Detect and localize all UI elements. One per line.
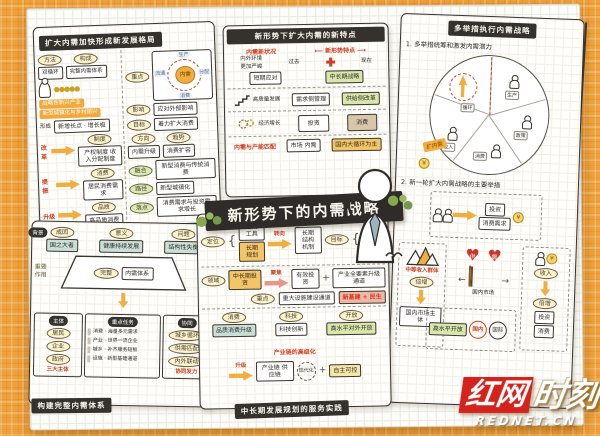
oval-label: 重点 — [250, 293, 274, 304]
plus-glyph: + — [322, 274, 330, 283]
flow-box: 内需升级 — [128, 145, 160, 159]
oval-label: 定位 — [201, 236, 225, 247]
oval-label: 成因 — [50, 227, 74, 238]
cycle-node: 流通 — [153, 70, 167, 77]
person-icon — [448, 127, 456, 139]
flow-box: 有效投资 — [291, 269, 319, 289]
flow-box: 国内大循环为主 — [331, 138, 381, 152]
pie-divider — [489, 99, 545, 116]
cycle-node: 生产 — [176, 51, 190, 58]
flow-box: 投资 — [534, 311, 554, 325]
form-label: 形成 — [40, 123, 51, 130]
pie-label: 循环 — [460, 103, 474, 112]
column-tasks: 重点任务 消费 · 海量多元需求 产业 · 世界一流企业 城乡 · 补齐服务短板… — [84, 313, 160, 378]
oval-label: 影响 — [126, 104, 150, 116]
panel1-title: 扩大内需加快形成新发展格局 — [39, 32, 162, 51]
flow-box: 供给侧改革 — [342, 91, 380, 105]
watermark-domain: REDNET.CN — [456, 414, 596, 428]
flow-box: 应对外部影响 — [153, 102, 197, 117]
watermark-brand-red: 红网 — [459, 377, 534, 413]
flow-box: 自主可控 — [329, 363, 361, 377]
left-note: 重要作用 — [35, 263, 47, 279]
person-icon — [433, 208, 441, 220]
flow-box: 市场 内需 — [287, 139, 321, 153]
flow-box: 需求侧管理 — [292, 92, 330, 106]
flow-box: 内需体系 — [121, 266, 153, 280]
flow-box: 产业链 供应链 — [256, 361, 294, 382]
flow-box: 高水平对外开放 — [327, 322, 377, 336]
flow-box: 消费需求 — [478, 216, 510, 230]
oval-label: 方法 — [38, 54, 62, 66]
flow-box: 高水平开放 — [429, 322, 467, 336]
flow-arrow-icon — [453, 209, 477, 221]
oval-label: 企业 — [46, 341, 70, 352]
watermark-brand-white: 时刻 — [531, 377, 600, 413]
red-caption: 产业链的高级化 — [274, 349, 316, 357]
person-icon — [491, 144, 499, 156]
flow-box: 中长期投资 — [228, 270, 261, 291]
mountain-icon — [405, 245, 440, 266]
oval-label: 消费 — [222, 312, 246, 323]
oval-label: 趋势 — [166, 132, 190, 144]
flow-box: 新基建 + 民生 — [338, 290, 385, 304]
oval-label: 重点 — [125, 71, 149, 83]
oval-label: 开放 — [339, 310, 363, 321]
down-arrow-icon — [415, 289, 427, 304]
arrow-tag: 聚焦 — [271, 270, 282, 277]
cycle-node: 消费 — [178, 92, 192, 99]
cycle-node: 分配 — [197, 68, 211, 75]
international-circulation-ring: 国际 — [489, 321, 508, 340]
market-label: 国内市场 — [472, 290, 494, 297]
highlight-text: 新型城镇化与乡村振兴 — [39, 107, 100, 118]
numbered-item-1: 1. 多举措统筹和激发内需潜力 — [406, 38, 578, 54]
column-header: 主体 — [49, 316, 68, 326]
down-arrow-icon — [118, 293, 129, 308]
flow-arrow-icon — [229, 370, 253, 381]
task-item: 消费 · 海量多元需求 — [88, 328, 157, 336]
oval-label: 落点 — [130, 202, 154, 214]
pie-label: 生产 — [505, 91, 519, 100]
oval-label: 品质 — [92, 201, 116, 213]
oval-label: 方向 — [131, 133, 155, 145]
flow-arrow-icon — [268, 238, 292, 249]
panel2-title: 新形势下扩大内需的新特点 — [227, 27, 385, 45]
demand-top-box: 投资 消费需求 ¥ — [429, 191, 543, 241]
oval-label: 政府 — [46, 354, 70, 365]
column-subjects: 主体 居民 企业 政府 三大主体 — [33, 312, 83, 376]
flow-box: 消费 — [347, 113, 377, 131]
now-label: 现在 — [361, 58, 372, 65]
oval-label: 构成 — [73, 53, 97, 65]
domestic-circulation-ring: 国内 — [469, 320, 488, 339]
oval-label: 消费 — [90, 167, 114, 179]
person-icon — [535, 252, 543, 264]
steps-icon — [234, 94, 250, 106]
oval-label: 路径 — [129, 183, 153, 195]
oval-label: 制度 — [88, 133, 112, 145]
chain-icon: ●●●●● — [54, 84, 80, 93]
mascot-figure — [342, 164, 404, 266]
oval-label: 居民 — [46, 328, 70, 339]
down-arrow-icon — [540, 281, 552, 296]
flow-box: 消费 — [534, 325, 554, 339]
task-item: 设施 · 新型基建通道 — [87, 355, 156, 363]
brace-glyph: { — [228, 235, 237, 248]
oval-label: 完整 — [94, 267, 118, 278]
supply-demand-hearts: ♥供 ♥需 — [454, 248, 514, 265]
flow-box: 着力扩大消费 — [154, 117, 198, 132]
plus-icon — [326, 57, 335, 66]
red-note: 中等收入群体 — [405, 267, 438, 275]
flow-box: 新型消费与传统消费 — [155, 158, 216, 180]
oval-label: 收入 — [534, 268, 558, 280]
poster-canvas: 扩大内需加快形成新发展格局 方法双循环 构成完整内需体系 ●●●●● 战略性新兴… — [0, 0, 600, 436]
panel4-title: 构建完整内需体系 — [31, 398, 111, 414]
person-icon — [522, 115, 530, 127]
person-icon — [509, 75, 517, 87]
pie-divider-red — [489, 57, 492, 115]
dual-circulation-box: 高水平开放 国内 国际 — [425, 307, 516, 352]
income-double-box: ¥ 收入 倍增 投资 消费 — [519, 246, 571, 352]
arrow-tag: 升级 — [235, 363, 246, 370]
flow-box: 产业全要素升级通道 — [333, 267, 386, 288]
watermark: 红网 时刻 REDNET.CN — [456, 377, 600, 428]
heart-icon: ♥供 — [465, 248, 482, 264]
flow-box: 长期 结构 机制 — [294, 226, 322, 253]
oval-label: 问题 — [172, 229, 196, 240]
mascot-drawing — [342, 164, 404, 266]
market-row: ← 国内市场 → — [449, 266, 518, 298]
tag-oval: 倍增 — [533, 298, 557, 310]
right-arrow-icon: → — [501, 278, 509, 287]
system-trapezoid: 完整 内需体系 — [59, 254, 188, 292]
past-label: 过去 — [288, 59, 299, 66]
flow-arrow-icon — [58, 209, 82, 221]
oval-label: 融合 — [128, 165, 152, 177]
coin-icon: ¥ — [418, 158, 429, 169]
heart-icon: ♥需 — [487, 249, 504, 265]
task-item: 城乡 · 补齐服务短板 — [88, 346, 157, 354]
flow-box: 重大设施建设通道 — [278, 291, 334, 305]
flow-box: 居民消费需求 — [83, 179, 124, 200]
flow-box: 双循环 — [38, 66, 63, 79]
section-label: 经济增长 — [258, 120, 280, 127]
measures-diagram: 投资 消费需求 ¥ 中等收入群体 倍增 国内市场主体 ¥ 收入 — [395, 190, 573, 358]
panel-complete-demand-system: 背景 成因国之大者 意义健康持续发展 问题结构性失衡 重要作用 完整 内需体系 … — [28, 220, 217, 407]
demand-cycle-diagram: 内需 生产 分配 消费 流通 — [151, 49, 213, 101]
plus-glyph: + — [319, 366, 327, 375]
pie-label: 政策 — [513, 131, 527, 140]
panel-new-development-pattern: 扩大内需加快形成新发展格局 方法双循环 构成完整内需体系 ●●●●● 战略性新兴… — [33, 21, 222, 229]
column-header: 重点任务 — [108, 317, 138, 328]
flow-arrow-icon — [51, 145, 75, 157]
measures-pie-chart: 循环 生产 政策 消费 收入 扩内需 ¥ — [427, 53, 551, 177]
side-note: 内外环境 — [240, 56, 262, 63]
flow-box: 长期规划 — [239, 241, 265, 261]
red-caption: 协同发力 — [175, 369, 197, 376]
arrow-tag: 转向 — [274, 231, 285, 238]
flow-box: 短期应对 — [249, 71, 281, 85]
coin-icon: ¥ — [546, 253, 557, 264]
pie-label: 消费 — [473, 152, 487, 161]
flow-box: 健康持续发展 — [99, 240, 143, 254]
panel-measures-strategy: 多举措执行内需战略 1. 多举措统筹和激发内需潜力 循环 生产 政策 消费 收入… — [387, 13, 584, 409]
oval-label: 意义 — [109, 228, 133, 239]
arrow-tag: 升级 — [43, 211, 55, 220]
flow-arrow-icon — [56, 179, 80, 191]
panel3-title: 多举措执行内需战略 — [448, 21, 537, 39]
coin-icon: ¥ — [513, 211, 524, 222]
flow-box: 新型城镇化 — [156, 181, 194, 195]
flow-box: 投资 — [299, 114, 329, 132]
red-note: 内需与产能匹配 — [234, 142, 276, 152]
flow-box: 完整内需体系 — [65, 65, 106, 79]
arrow-tag: 提振 — [42, 176, 54, 194]
red-note: ⟵ 新形势特点 ⟶ — [314, 45, 366, 55]
flow-arrow-icon — [264, 277, 288, 288]
flow-box: 消费扩容 — [163, 144, 195, 158]
corner-tag: 背景 — [28, 227, 47, 237]
column-header: 协同 — [178, 318, 197, 328]
oval-label: 领域 — [201, 275, 225, 286]
pawn-icon — [38, 81, 51, 97]
numbered-item-2: 2. 新一轮扩大内需战略的主要举措 — [401, 176, 573, 192]
cycle-center: 内需 — [175, 66, 196, 85]
flow-box: 国之大者 — [46, 239, 78, 253]
left-arrow-icon: ← — [458, 276, 466, 285]
oval-label: 科技 — [279, 311, 303, 322]
flow-box: 投资 — [485, 202, 505, 216]
flow-box: 新增长点 · 增长极 — [54, 118, 110, 133]
side-note: 更加严峻 — [240, 63, 262, 70]
tag-oval: 倍增 — [409, 276, 433, 288]
person-icon — [443, 208, 451, 220]
section-label: 高质量发展 — [253, 96, 281, 103]
oval-label: 目标 — [127, 119, 151, 131]
arrow-tag: 改革 — [41, 142, 49, 160]
flow-box: 产权制度 收入分配制度 — [78, 145, 122, 167]
highlight-text: 战略性新兴产业 — [39, 98, 84, 109]
flow-box: 中长期战略 — [325, 70, 363, 84]
flow-box: 品质消费升级 — [212, 324, 256, 338]
shop-icon — [468, 266, 499, 289]
modernization-ring: 现代化 — [297, 361, 316, 380]
gears-icon — [237, 117, 255, 131]
task-item: 产业 · 世界一流企业 — [88, 337, 157, 345]
flow-box: 科技创新 — [275, 323, 307, 337]
red-caption: 三大主体 — [47, 367, 69, 374]
red-note: 内需新状况 — [246, 47, 276, 57]
